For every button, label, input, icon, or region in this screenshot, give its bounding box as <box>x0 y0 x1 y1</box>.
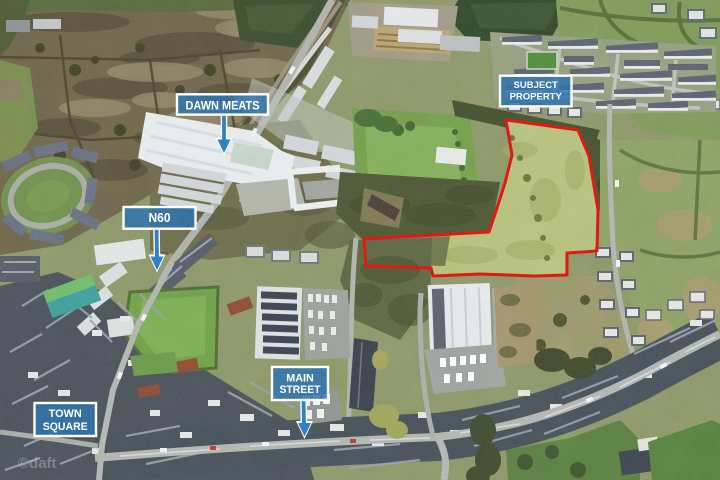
svg-text:MAIN: MAIN <box>286 373 314 385</box>
svg-text:SUBJECT: SUBJECT <box>514 80 559 91</box>
svg-text:SQUARE: SQUARE <box>43 421 88 433</box>
svg-text:STREET: STREET <box>280 384 321 396</box>
svg-text:N60: N60 <box>149 210 171 225</box>
svg-text:PROPERTY: PROPERTY <box>510 92 563 103</box>
svg-text:DAWN MEATS: DAWN MEATS <box>186 98 260 112</box>
svg-text:TOWN: TOWN <box>49 408 82 420</box>
